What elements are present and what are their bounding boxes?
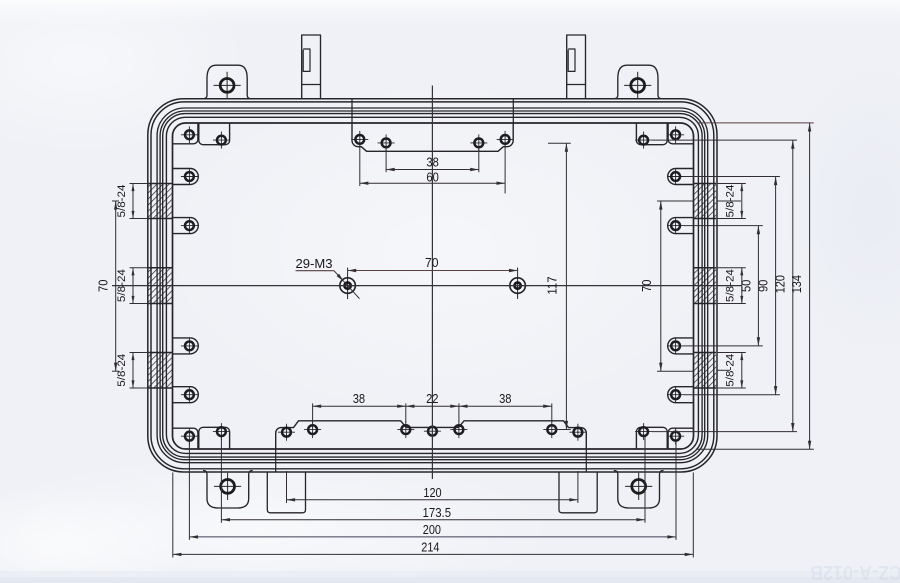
svg-text:120: 120 xyxy=(773,275,788,293)
svg-text:5/8-24: 5/8-24 xyxy=(116,269,128,302)
svg-text:29-M3: 29-M3 xyxy=(296,256,333,271)
svg-text:90: 90 xyxy=(755,280,770,292)
svg-text:5/8-24: 5/8-24 xyxy=(116,354,128,387)
svg-text:60: 60 xyxy=(426,170,438,185)
svg-text:70: 70 xyxy=(425,255,439,270)
svg-text:5/8-24: 5/8-24 xyxy=(116,185,128,218)
svg-text:22: 22 xyxy=(426,391,438,406)
svg-text:5/8-24: 5/8-24 xyxy=(725,269,737,302)
svg-text:70: 70 xyxy=(96,280,111,292)
svg-text:38: 38 xyxy=(499,391,511,406)
svg-text:200: 200 xyxy=(423,522,441,537)
svg-text:117: 117 xyxy=(545,276,560,294)
svg-text:214: 214 xyxy=(421,539,439,554)
svg-text:120: 120 xyxy=(423,485,441,500)
svg-text:134: 134 xyxy=(789,275,804,293)
svg-text:38: 38 xyxy=(426,154,438,169)
svg-text:CZ-A-012B: CZ-A-012B xyxy=(810,561,900,583)
svg-text:173.5: 173.5 xyxy=(423,505,452,520)
svg-text:70: 70 xyxy=(639,280,654,292)
svg-text:38: 38 xyxy=(353,391,365,406)
svg-text:50: 50 xyxy=(738,280,753,292)
